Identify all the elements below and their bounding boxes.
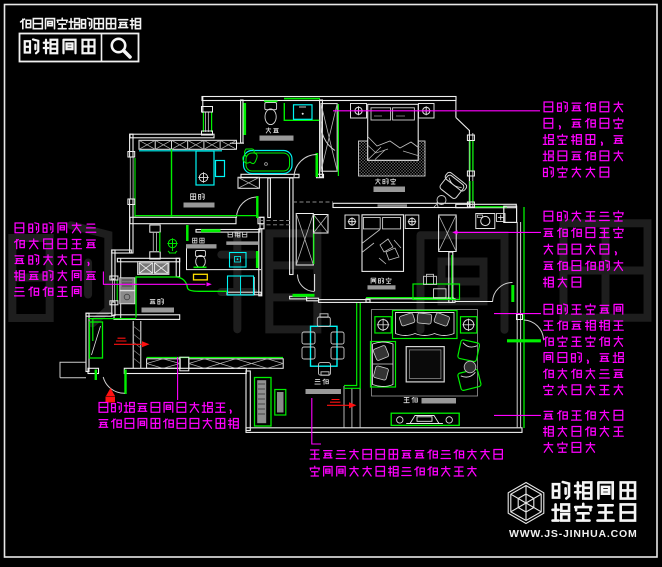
svg-text:WWW.JS-JINHUA.COM: WWW.JS-JINHUA.COM	[509, 528, 638, 540]
